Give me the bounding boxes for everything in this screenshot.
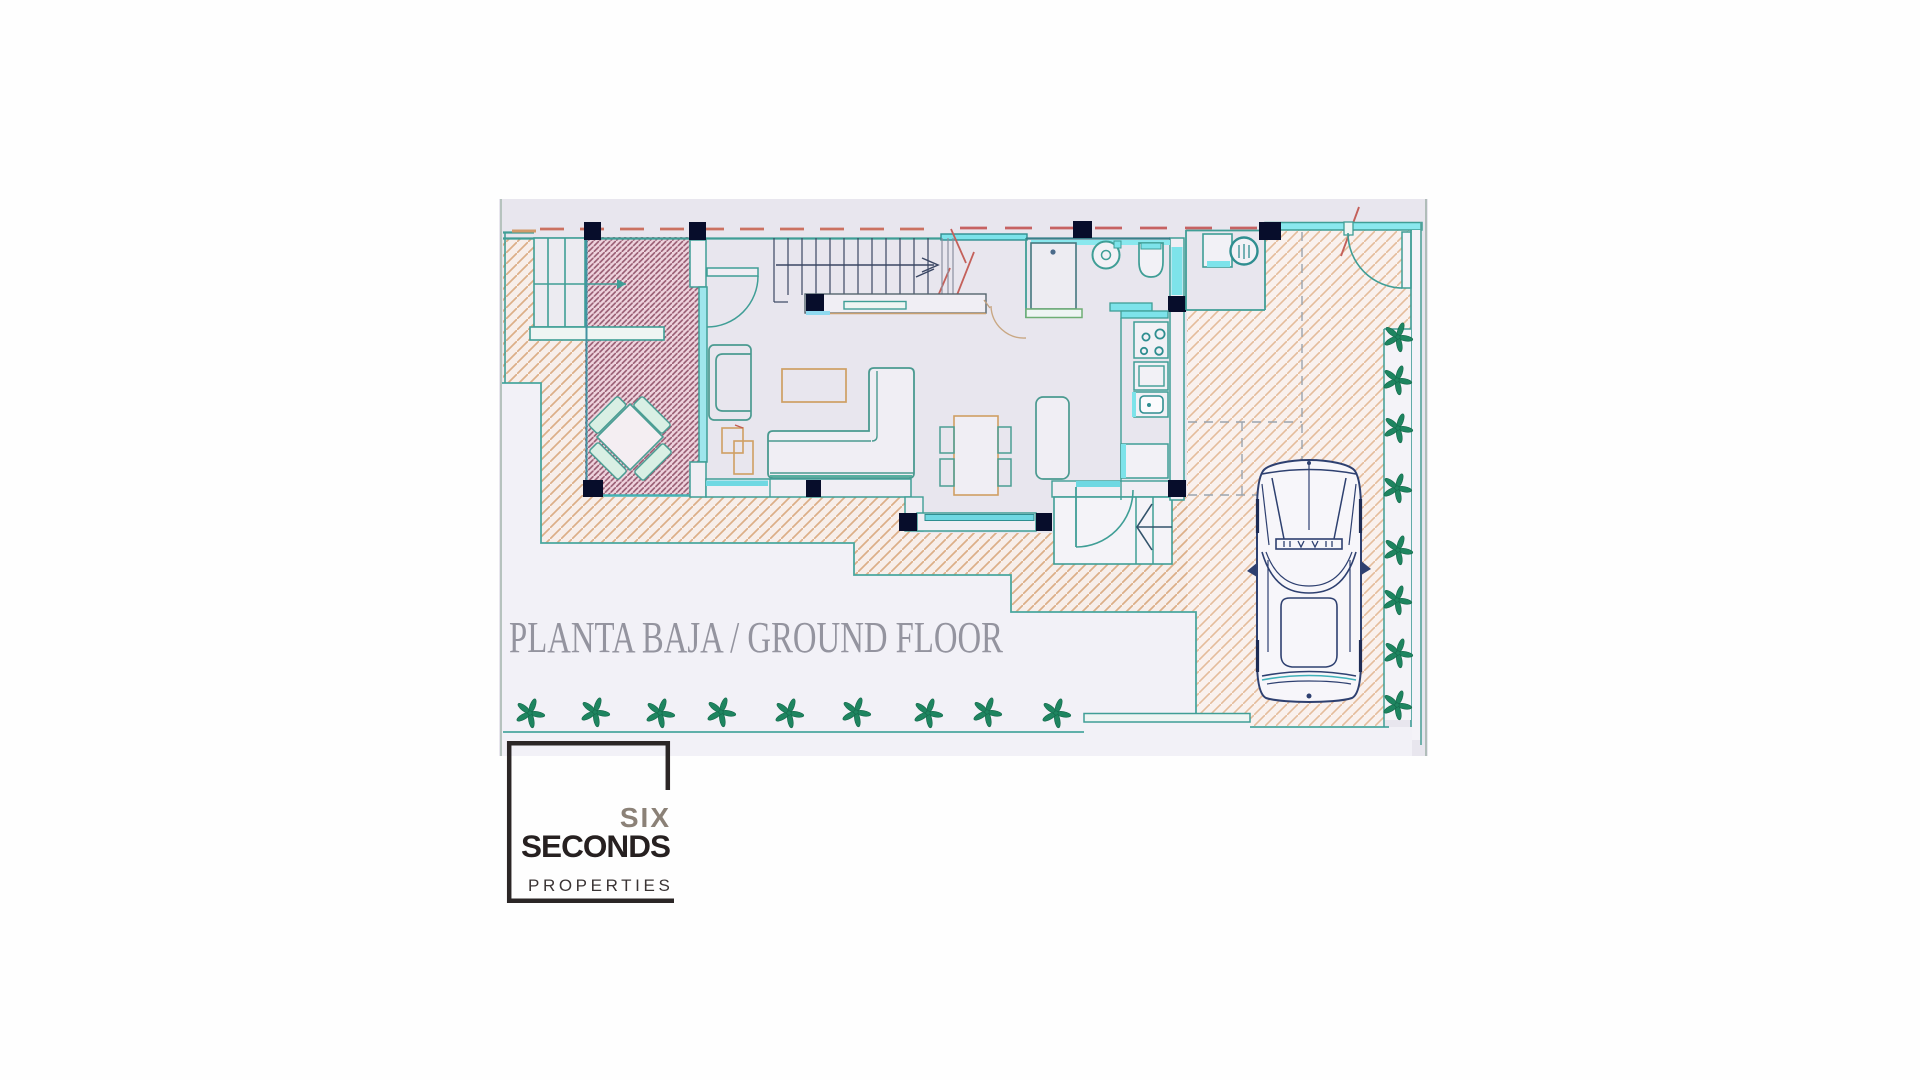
svg-text:PROPERTIES: PROPERTIES (528, 876, 673, 895)
svg-text:PLANTA BAJA / GROUND FLOOR: PLANTA BAJA / GROUND FLOOR (509, 613, 1003, 662)
svg-text:SECONDS: SECONDS (521, 828, 671, 864)
